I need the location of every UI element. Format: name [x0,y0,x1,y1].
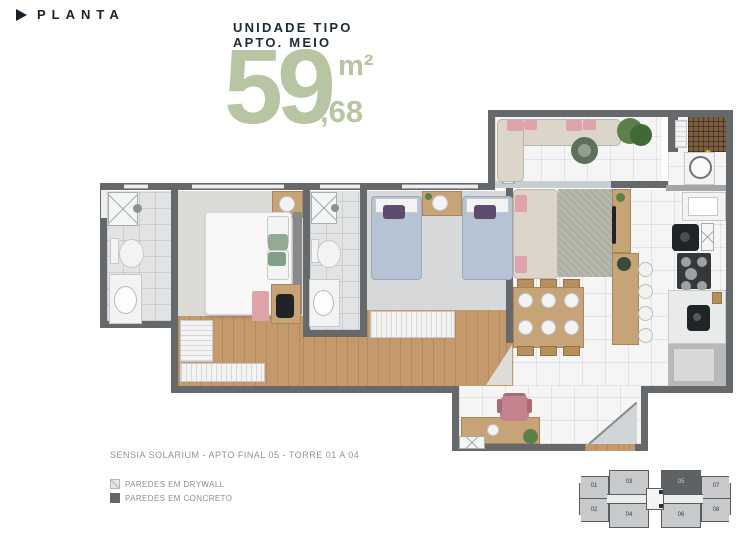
plate [541,293,556,308]
window [402,184,478,189]
wood-slat-cabinet [688,117,726,152]
accent-pillow [268,252,286,266]
stool [638,306,653,321]
dining-chair [540,346,557,356]
sink [313,290,334,316]
wall [611,181,668,188]
keyplan-unit-label: 01 [587,483,601,489]
concrete-swatch-icon [110,493,120,503]
tv [612,206,616,244]
page-header: PLANTA [16,7,125,22]
keyplan-unit-label: 06 [674,512,688,518]
shower-head-icon [133,204,142,213]
mug-icon [487,424,499,436]
plate [541,320,556,335]
burner-icon [697,257,707,267]
wardrobe [370,311,455,338]
keyplan-unit-label: 03 [622,479,636,485]
pillow [507,120,523,131]
wall [641,386,733,393]
legend-label: PAREDES EM CONCRETO [125,494,232,503]
pillow [515,195,527,212]
sink-drain-icon [680,232,690,242]
plant-icon [523,429,538,444]
keyplan-joint [659,490,663,494]
wall [360,190,367,337]
unit-area: 59 m² ,68 [224,34,330,140]
keyplan-unit-label: 07 [709,483,723,489]
legend-item-concrete: PAREDES EM CONCRETO [110,493,232,503]
sink-drain-icon [693,313,701,321]
window [101,190,107,218]
entry-threshold [585,444,635,451]
stool [638,284,653,299]
wall [641,386,648,451]
pillow [515,256,527,273]
burner-icon [681,257,691,267]
living-rug [558,189,612,277]
accent-pillow [268,234,288,250]
pillow [524,120,537,130]
page-title: PLANTA [37,7,125,22]
caption: SENSIA SOLARIUM - APTO FINAL 05 - TORRE … [110,450,359,460]
dining-chair [563,346,580,356]
shower-head-icon [331,204,339,212]
plate [518,320,533,335]
wall [488,110,733,117]
lamp-icon [279,196,295,212]
keyplan-notch [729,515,733,522]
wall [171,321,178,393]
stool [638,328,653,343]
vase-icon [616,193,625,202]
plant-icon [425,193,432,200]
toilet [317,240,341,268]
wall [488,110,495,190]
keyplan-notch [577,515,581,522]
coffee-table-top [578,144,591,157]
window [192,184,284,189]
plant-icon [630,124,652,146]
legend-item-drywall: PAREDES EM DRYWALL [110,479,225,489]
kitchen-window [701,223,714,251]
closet-shelves [180,363,265,382]
legend-label: PAREDES EM DRYWALL [125,480,225,489]
building-keyplan: 01 02 03 04 05 06 07 08 [577,466,733,532]
closet-shelves [180,320,213,362]
bench-ottoman [252,291,269,321]
chair-arm [497,399,502,413]
pillow [566,120,582,131]
accent-pillow [383,205,405,219]
wall [452,386,459,451]
stool [638,262,653,277]
window [320,184,360,189]
arrow-icon [16,9,27,21]
dining-chair [517,346,534,356]
wall [171,190,178,321]
lamp-icon [432,195,448,211]
utensil-holder [712,292,722,304]
sink [114,286,137,314]
chair-arm [527,399,532,413]
keyplan-unit-label: 08 [709,507,723,513]
tv [276,294,294,318]
fridge-door [673,348,715,382]
hallway-wood-floor [303,337,367,386]
plate [564,320,579,335]
wall [171,386,459,393]
plate [518,293,533,308]
keyplan-notch [729,476,733,483]
keyplan-joint [659,504,663,508]
pillow [583,120,596,130]
washer-drum-icon [689,156,712,179]
wall [303,330,367,337]
drywall-partition [666,185,726,191]
shoe-cabinet [459,436,485,449]
drywall-swatch-icon [110,479,120,489]
toilet [119,239,144,268]
keyplan-notch [577,476,581,483]
wall [726,110,733,393]
tank-basin [688,197,718,216]
laundry-rack [675,120,687,148]
plate [564,293,579,308]
area-unit: m² [338,50,373,83]
keyplan-unit-label: 02 [587,507,601,513]
office-chair [500,396,529,421]
area-decimal: ,68 [320,94,363,130]
toilet-tank [110,238,119,264]
floorplan-page: PLANTA UNIDADE TIPO APTO. MEIO 59 m² ,68 [0,0,736,540]
area-integer: 59 [224,28,330,146]
burner-icon [685,268,697,280]
accent-pillow [474,205,496,219]
island-sink [617,257,631,271]
keyplan-unit-label: 04 [622,512,636,518]
keyplan-unit-label: 05 [674,479,688,485]
window [124,184,148,189]
